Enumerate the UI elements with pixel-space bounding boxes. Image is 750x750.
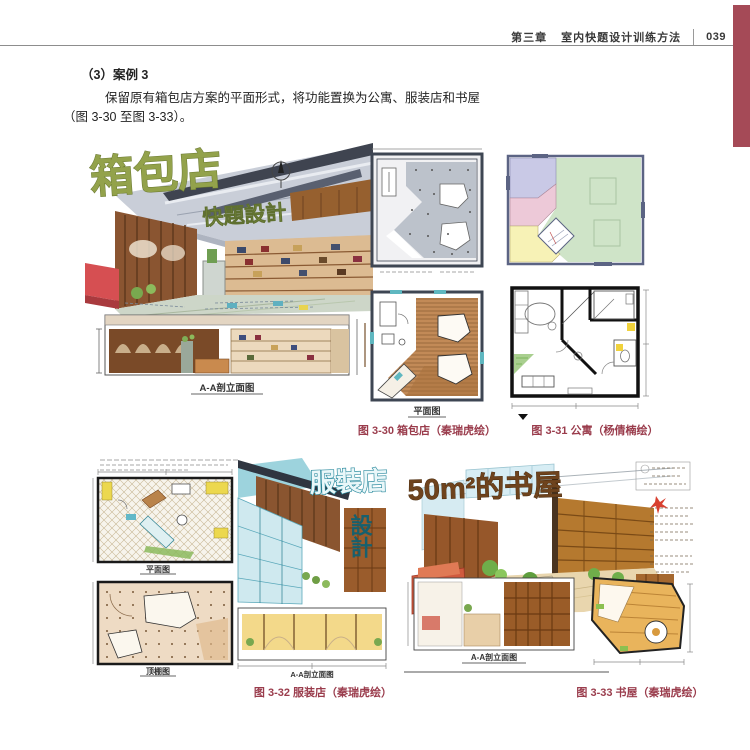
fig-3-31-plans: [498, 148, 655, 424]
bookhouse-plan: [592, 578, 693, 665]
ceiling-plan: [372, 149, 482, 272]
page-header: 第三章 室内快题设计训练方法 039: [511, 27, 750, 47]
fig-3-32-artwork: 平面图 顶棚图: [88, 456, 394, 680]
graffiti-subtitle: 設計: [348, 513, 373, 558]
plan-label: 平面图: [146, 565, 170, 574]
elevation-label: A-A剖立面图: [200, 382, 255, 394]
header-divider: [693, 29, 694, 46]
body-text: （3）案例 3 保留原有箱包店方案的平面形式，将功能置换为公寓、服装店和书屋 （…: [63, 66, 493, 127]
apartment-plan: [512, 288, 649, 420]
clothstore-ceiling-plan: 顶棚图: [93, 582, 232, 676]
body-line-1: 保留原有箱包店方案的平面形式，将功能置换为公寓、服装店和书屋: [105, 89, 493, 108]
graffiti-title: 箱包店: [88, 145, 223, 203]
ceiling-label: 顶棚图: [146, 666, 170, 676]
case-heading: （3）案例 3: [81, 66, 493, 85]
elevation-label: A-A剖立面图: [290, 669, 334, 679]
page-edge-tab: [733, 5, 750, 147]
chapter-label: 第三章: [511, 29, 547, 45]
graffiti-title-group: 50m²的书屋: [407, 468, 563, 507]
plan-label: 平面图: [413, 406, 440, 416]
clothstore-elevation: A-A剖立面图: [238, 608, 386, 679]
graffiti-title: 服裝店: [309, 465, 388, 498]
fig-3-33-caption: 图 3-33 书屋（秦瑞虎绘）: [560, 684, 720, 700]
book-page: 第三章 室内快题设计训练方法 039 （3）案例 3 保留原有箱包店方案的平面形…: [0, 0, 750, 750]
elevation-label: A-A剖立面图: [471, 652, 517, 662]
chapter-title: 室内快题设计训练方法: [561, 29, 681, 45]
zoning-plan: [506, 154, 645, 266]
body-line-2: （图 3-30 至图 3-33）。: [63, 108, 493, 127]
floor-plan: 平面图: [370, 290, 484, 417]
fig-3-31-caption: 图 3-31 公寓（杨倩楠绘）: [520, 422, 670, 438]
graffiti-title: 50m²的书屋: [407, 468, 563, 507]
fig-3-30-caption: 图 3-30 箱包店（秦瑞虎绘）: [352, 422, 502, 438]
fig-3-30-plans: 平面图: [364, 146, 492, 428]
clothstore-floor-plan: 平面图: [93, 469, 232, 574]
handwritten-note-block: [100, 460, 238, 470]
fig-3-32-caption: 图 3-32 服装店（秦瑞虎绘）: [238, 684, 408, 700]
fig-3-30-rendering: 箱包店 快題設計: [85, 143, 373, 435]
fig-3-33-artwork: 50m²的书屋 A-A剖立面图: [404, 456, 696, 680]
header-rule: [0, 45, 750, 46]
bagstore-elevation: A-A剖立面图: [96, 315, 365, 394]
